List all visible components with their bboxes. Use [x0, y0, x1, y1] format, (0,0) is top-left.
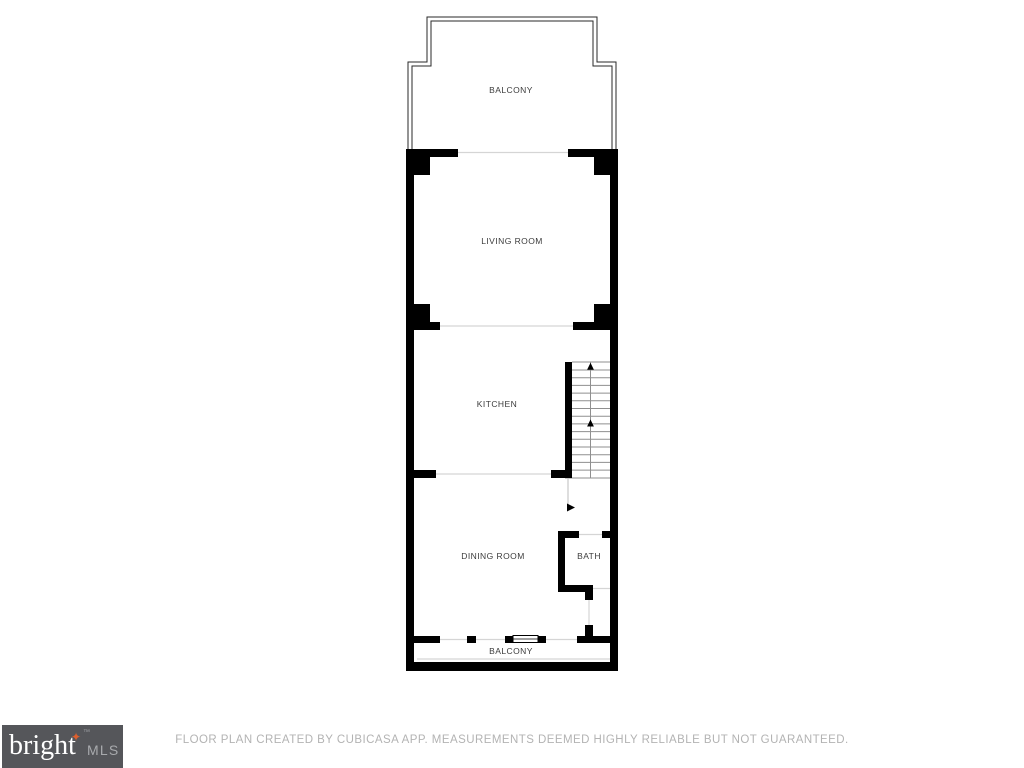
walls	[406, 149, 618, 671]
window-symbol	[513, 636, 538, 643]
floor-plan-diagram: BALCONY LIVING ROOM KITCHEN DINING ROOM …	[0, 0, 1024, 768]
right-exterior-wall	[610, 149, 618, 671]
room-label-bath: BATH	[577, 551, 601, 561]
stair-up-arrow-icon	[587, 420, 594, 427]
logo-sparkle-icon: ✦	[71, 731, 81, 743]
room-label-living-room: LIVING ROOM	[481, 236, 543, 246]
logo-trademark: ™	[83, 729, 90, 736]
footer-disclaimer: FLOOR PLAN CREATED BY CUBICASA APP. MEAS…	[0, 734, 1024, 746]
balcony-top-railing	[408, 17, 616, 149]
room-label-balcony-bottom: BALCONY	[489, 646, 533, 656]
room-label-balcony-top: BALCONY	[489, 85, 533, 95]
bright-mls-logo: bright ✦ ™ MLS	[2, 725, 123, 768]
stair-wall	[565, 362, 572, 478]
stair-down-flight-arrow-icon	[567, 504, 575, 512]
room-label-dining-room: DINING ROOM	[461, 551, 525, 561]
room-label-kitchen: KITCHEN	[477, 399, 517, 409]
logo-brand-text: bright	[9, 728, 76, 764]
logo-mls-text: MLS	[87, 742, 119, 758]
stair-up-arrow-icon	[587, 363, 594, 370]
left-exterior-wall	[406, 149, 414, 671]
balcony-bottom-wall	[406, 662, 618, 671]
